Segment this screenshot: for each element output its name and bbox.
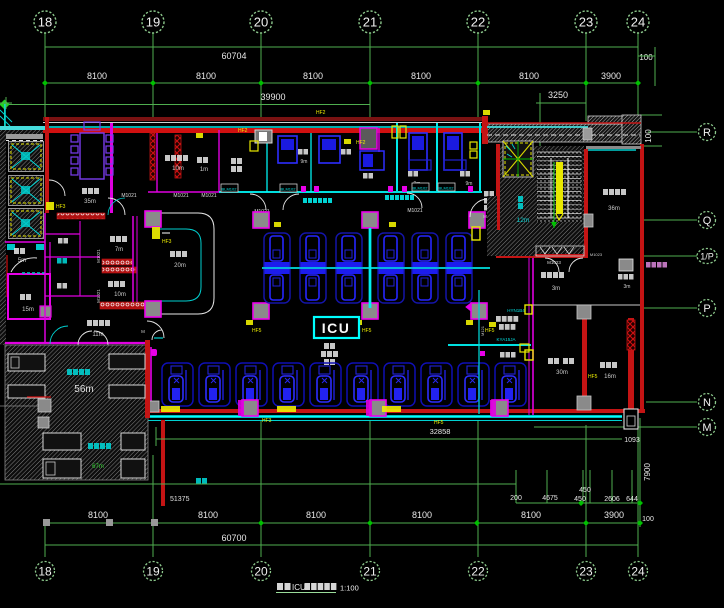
svg-text:8100: 8100 [411, 71, 431, 81]
svg-text:32858: 32858 [430, 427, 451, 436]
svg-text:10m: 10m [114, 292, 126, 298]
svg-text:KYA15JA: KYA15JA [497, 337, 516, 342]
svg-text:HF2: HF2 [238, 128, 248, 134]
svg-text:8100: 8100 [519, 71, 539, 81]
svg-text:20: 20 [254, 15, 268, 30]
svg-text:2606: 2606 [604, 496, 620, 503]
svg-text:15m: 15m [22, 307, 34, 313]
svg-text:22: 22 [471, 15, 485, 30]
svg-text:21: 21 [363, 15, 377, 30]
svg-text:HF3: HF3 [262, 418, 272, 424]
svg-text:M1021: M1021 [201, 193, 217, 199]
svg-text:M1023: M1023 [547, 260, 561, 265]
svg-text:36m: 36m [608, 206, 620, 212]
svg-text:3900: 3900 [604, 510, 624, 520]
svg-text:16m: 16m [604, 374, 616, 380]
svg-text:Q: Q [703, 215, 712, 227]
svg-text:67m: 67m [92, 464, 104, 470]
svg-text:100: 100 [642, 516, 654, 523]
svg-text:HF2: HF2 [356, 140, 366, 146]
svg-text:8100: 8100 [198, 510, 218, 520]
svg-text:200: 200 [510, 495, 522, 502]
svg-text:M1021: M1021 [96, 249, 101, 263]
svg-text:10m: 10m [172, 166, 184, 172]
svg-text:8100: 8100 [87, 71, 107, 81]
svg-text:M: M [702, 422, 711, 434]
svg-text:24: 24 [631, 565, 645, 579]
svg-text:HYN1B4: HYN1B4 [507, 308, 525, 313]
svg-text:8100: 8100 [303, 71, 323, 81]
svg-text:4675: 4675 [542, 495, 558, 502]
svg-text:HF5: HF5 [252, 328, 262, 334]
svg-text:7900: 7900 [643, 463, 652, 481]
svg-text:8100: 8100 [412, 510, 432, 520]
svg-text:3250: 3250 [548, 90, 568, 100]
svg-text:BLM102: BLM102 [281, 187, 297, 192]
svg-text:8100: 8100 [521, 510, 541, 520]
svg-text:BLM102: BLM102 [222, 187, 238, 192]
svg-text:23: 23 [579, 565, 593, 579]
svg-text:M1021: M1021 [121, 193, 137, 199]
svg-text:22: 22 [471, 565, 485, 579]
svg-text:30m: 30m [556, 370, 568, 376]
svg-text:M1021: M1021 [407, 208, 423, 214]
svg-text:P: P [703, 303, 710, 315]
svg-text:450: 450 [574, 496, 586, 503]
svg-text:HF3: HF3 [56, 204, 66, 210]
svg-text:M1023: M1023 [590, 252, 603, 257]
svg-text:24: 24 [631, 15, 645, 30]
svg-text:M1021: M1021 [96, 289, 101, 303]
svg-text:23: 23 [579, 15, 593, 30]
svg-text:BLM102: BLM102 [439, 186, 455, 191]
svg-text:M1021: M1021 [173, 193, 189, 199]
svg-text:56m: 56m [74, 384, 93, 395]
svg-text:19: 19 [146, 15, 160, 30]
svg-text:HF5: HF5 [434, 420, 444, 426]
svg-text:HF3: HF3 [162, 239, 172, 245]
svg-text:BLM102: BLM102 [413, 186, 429, 191]
svg-text:HF5: HF5 [588, 374, 598, 380]
svg-text:R: R [703, 127, 711, 139]
svg-text:7m: 7m [115, 247, 123, 253]
svg-text:644: 644 [626, 496, 638, 503]
svg-text:1093: 1093 [624, 437, 640, 444]
svg-text:100: 100 [639, 53, 653, 62]
svg-text:39900: 39900 [260, 92, 285, 102]
svg-text:ICU: ICU [292, 583, 306, 592]
svg-text:M: M [141, 329, 145, 334]
svg-text:100: 100 [644, 129, 653, 143]
svg-text:18: 18 [38, 565, 52, 579]
svg-text:51375: 51375 [170, 496, 190, 503]
svg-text:8100: 8100 [306, 510, 326, 520]
svg-text:HF5: HF5 [485, 328, 495, 334]
svg-text:18: 18 [38, 15, 52, 30]
svg-text:21: 21 [363, 565, 377, 579]
svg-text:12m: 12m [517, 217, 530, 224]
svg-text:HF2: HF2 [316, 110, 326, 116]
svg-text:60700: 60700 [221, 533, 246, 543]
svg-text:8100: 8100 [196, 71, 216, 81]
svg-text:3m: 3m [552, 286, 560, 292]
svg-text:M121: M121 [480, 325, 485, 336]
svg-text:20: 20 [254, 565, 268, 579]
svg-text:1/P: 1/P [700, 252, 714, 262]
svg-text:9m: 9m [301, 159, 308, 165]
svg-text:19: 19 [146, 565, 160, 579]
svg-text:35m: 35m [84, 199, 96, 205]
svg-text:1m: 1m [200, 167, 208, 173]
svg-text:1:100: 1:100 [340, 584, 359, 593]
svg-text:60704: 60704 [221, 51, 246, 61]
svg-text:ICU: ICU [322, 320, 351, 336]
svg-text:3m: 3m [624, 284, 631, 290]
svg-text:8100: 8100 [88, 510, 108, 520]
svg-text:N: N [703, 397, 711, 409]
svg-text:20m: 20m [174, 263, 186, 269]
svg-text:450: 450 [579, 487, 591, 494]
svg-text:HF5: HF5 [362, 328, 372, 334]
svg-text:3900: 3900 [601, 71, 621, 81]
